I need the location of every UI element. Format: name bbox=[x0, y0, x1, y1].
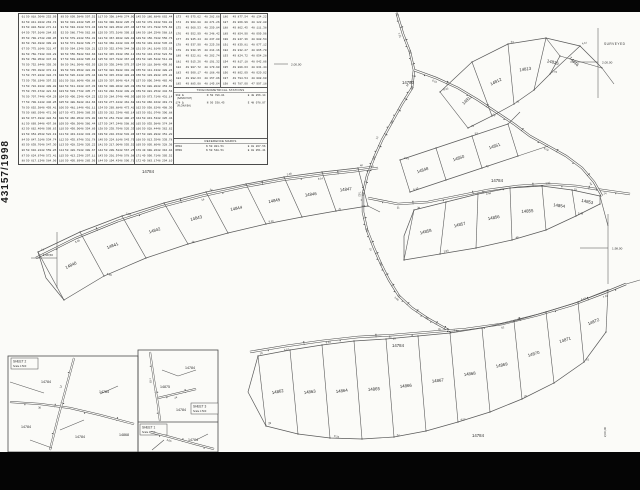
point-number: 8.23 bbox=[443, 86, 449, 91]
point-number: 48 bbox=[360, 163, 364, 168]
parcel-boundary bbox=[400, 124, 508, 160]
road-label: 14784 bbox=[491, 178, 504, 183]
plan-reference-number: 43157/1998 bbox=[0, 140, 11, 203]
survey-point bbox=[577, 301, 578, 302]
survey-point bbox=[545, 311, 546, 312]
inset-parcel-boundary bbox=[30, 440, 52, 448]
point-number: 9.14 bbox=[318, 176, 324, 181]
survey-point bbox=[424, 75, 425, 76]
point-number: 28 bbox=[485, 164, 490, 169]
road-label: 14780 bbox=[402, 80, 415, 85]
lot-number: 14851 bbox=[488, 142, 501, 151]
inset-parcel-boundary bbox=[60, 420, 84, 430]
survey-point bbox=[145, 257, 146, 258]
coordinate-row: 8850 617.1348 584.96 bbox=[19, 158, 57, 163]
lot-number: 14850 bbox=[452, 154, 465, 163]
parcel-divider bbox=[508, 44, 514, 104]
survey-point bbox=[517, 155, 518, 156]
trig-station-northing: N 50 538.45 bbox=[207, 102, 225, 105]
survey-point bbox=[409, 58, 410, 59]
survey-point bbox=[268, 350, 269, 351]
survey-point bbox=[370, 163, 371, 164]
coordinate-row: 17249 983.1748 294.10 bbox=[135, 158, 173, 163]
lot-number: 14864 bbox=[336, 387, 349, 394]
parcel-divider bbox=[472, 62, 492, 116]
parcel-divider bbox=[476, 194, 478, 248]
point-number: 24 bbox=[174, 395, 178, 400]
survey-point bbox=[257, 355, 258, 356]
parcel-divider bbox=[572, 190, 576, 216]
parcel-boundary bbox=[404, 204, 600, 260]
parcel-divider bbox=[322, 345, 330, 438]
reference-mark-northing: N 50 001.51 bbox=[206, 145, 224, 148]
survey-point bbox=[407, 92, 408, 93]
inset-parcel-boundary bbox=[152, 440, 164, 450]
lot-number: 14843 bbox=[190, 214, 203, 222]
inset-sheets-layer: SHEET 2Scale 1:500SHEET 3Scale 1:500SHEE… bbox=[8, 350, 218, 452]
point-number: 16 bbox=[259, 351, 263, 356]
parcel-boundary bbox=[600, 196, 608, 226]
lot-number: 14855 bbox=[521, 208, 534, 214]
survey-point bbox=[227, 232, 228, 233]
inset-lot-number: 14784 bbox=[75, 435, 85, 439]
survey-point bbox=[283, 176, 284, 177]
parcel-divider bbox=[246, 184, 266, 224]
inset-lot-number: 14784 bbox=[99, 390, 109, 394]
survey-point bbox=[421, 316, 422, 317]
parcel-divider bbox=[440, 92, 468, 128]
survey-point bbox=[553, 382, 554, 383]
inset-sheet3-title: SHEET 3 bbox=[193, 405, 206, 409]
lot-number: 14816 bbox=[568, 55, 580, 67]
parcel-divider bbox=[164, 203, 188, 244]
point-number: 16 bbox=[191, 240, 195, 244]
grid-coordinate-label: 1,98,00 bbox=[612, 247, 623, 251]
survey-point bbox=[615, 290, 616, 291]
survey-point bbox=[301, 216, 302, 217]
parcel-divider bbox=[534, 38, 546, 90]
survey-point bbox=[403, 259, 404, 260]
parcel-divider bbox=[322, 172, 336, 211]
point-number: 44 bbox=[396, 433, 400, 438]
inset-lot-number: 14875 bbox=[160, 385, 170, 389]
survey-point bbox=[615, 193, 616, 194]
survey-point bbox=[425, 430, 426, 431]
lot-number: 14813 bbox=[519, 66, 532, 73]
parcel-divider bbox=[386, 339, 394, 437]
survey-point bbox=[599, 195, 600, 196]
point-number: 36 bbox=[38, 405, 42, 409]
survey-point bbox=[489, 411, 490, 412]
survey-point bbox=[409, 191, 410, 192]
lot-number: 14848 bbox=[416, 166, 429, 175]
survey-point bbox=[439, 253, 440, 254]
point-number: 12 bbox=[375, 135, 380, 140]
survey-point bbox=[363, 224, 364, 225]
reference-marks-box: REFERENCE MARKS RM10 N 50 001.51 E 48 26… bbox=[174, 139, 267, 164]
survey-point bbox=[406, 46, 407, 47]
inset-parcel-boundary bbox=[162, 370, 178, 376]
lot-number: 14844 bbox=[230, 205, 243, 212]
point-number: 12 bbox=[58, 384, 63, 388]
survey-point bbox=[484, 328, 485, 329]
point-number: 48 bbox=[515, 235, 519, 239]
point-number: 7.62 bbox=[358, 191, 362, 197]
parcel-divider bbox=[472, 136, 482, 168]
point-number: 12 bbox=[41, 248, 45, 252]
lot-number: 14865 bbox=[368, 386, 381, 392]
survey-point bbox=[361, 438, 362, 439]
survey-point bbox=[607, 289, 608, 290]
survey-point bbox=[382, 202, 383, 203]
parcel-boundary bbox=[508, 112, 520, 124]
coordinate-group: 6150 818.3648 252.096250 811.0248 263.74… bbox=[19, 14, 58, 164]
point-number: 36 bbox=[417, 206, 421, 210]
point-number: 2.44 bbox=[453, 329, 459, 333]
survey-point bbox=[265, 223, 266, 224]
survey-point bbox=[417, 335, 418, 336]
parcel-divider bbox=[290, 350, 298, 434]
survey-point bbox=[157, 413, 158, 414]
parcel-divider bbox=[80, 232, 104, 276]
road-casing bbox=[363, 14, 452, 332]
survey-point bbox=[413, 209, 414, 210]
lot-number: 14846 bbox=[305, 191, 318, 198]
survey-point bbox=[538, 142, 539, 143]
survey-point bbox=[353, 340, 354, 341]
lot-number: 14841 bbox=[106, 241, 120, 250]
survey-point bbox=[605, 331, 606, 332]
coordinate-table-extra-groups: 17349 975.6248 282.6817449 968.0848 271.… bbox=[174, 14, 267, 88]
parcel-boundary bbox=[468, 56, 560, 128]
road-label: 14784 bbox=[472, 433, 485, 438]
point-number: 61 bbox=[501, 325, 505, 330]
point-number: 19 bbox=[523, 394, 528, 399]
lot-number: 14812 bbox=[489, 76, 502, 86]
reference-mark-id: RM10 bbox=[176, 145, 182, 148]
parcel-divider bbox=[440, 202, 446, 254]
survey-point bbox=[382, 270, 383, 271]
inset-lot-number: 14784 bbox=[41, 380, 51, 384]
parcel-divider bbox=[546, 312, 554, 383]
lot-number: 14842 bbox=[148, 226, 161, 234]
lot-number: 14868 bbox=[463, 370, 476, 377]
survey-point bbox=[596, 189, 597, 190]
survey-point bbox=[541, 185, 542, 186]
parcel-divider bbox=[206, 192, 228, 233]
reference-mark-row: RM30 N 50 548.51 E 48 051.41 bbox=[174, 148, 267, 152]
coordinate-row: 14450 194.4348 590.71 bbox=[97, 158, 135, 163]
road-casing bbox=[250, 284, 626, 352]
lot-number: 14870 bbox=[527, 350, 540, 358]
parcel-boundary bbox=[64, 206, 368, 300]
grid-coordinate-label: 2,00,00 bbox=[602, 61, 613, 65]
inset-road-centerline bbox=[10, 402, 134, 424]
inset-sheet1-title: SHEET 1 bbox=[142, 426, 155, 430]
parcel-divider bbox=[38, 252, 64, 300]
reference-mark-easting: E 48 051.41 bbox=[248, 149, 266, 152]
survey-point bbox=[24, 404, 25, 405]
survey-point bbox=[513, 103, 514, 104]
survey-point bbox=[377, 259, 378, 260]
grid-coordinate-label: 2,00,00 bbox=[291, 63, 302, 67]
reference-mark-easting: E 48 267.56 bbox=[248, 145, 266, 148]
survey-point bbox=[549, 73, 550, 74]
road-centerline bbox=[363, 14, 452, 332]
survey-point bbox=[504, 119, 505, 120]
survey-point bbox=[513, 320, 514, 321]
survey-point bbox=[507, 123, 508, 124]
survey-point bbox=[503, 189, 504, 190]
point-number: 24 bbox=[368, 247, 373, 252]
parcel-divider bbox=[284, 177, 302, 217]
lot-number: 14863 bbox=[303, 388, 316, 395]
parcel-divider bbox=[418, 336, 426, 431]
point-number: 61 bbox=[586, 357, 590, 361]
coordinate-row: 11650 405.6948 285.56 bbox=[58, 158, 96, 163]
coordinate-group: 17349 975.6248 282.6817449 968.0848 271.… bbox=[174, 14, 221, 87]
parcel-boundary bbox=[602, 68, 614, 84]
coordinate-group: 18649 877.5448 134.2218749 869.9948 122.… bbox=[221, 14, 267, 87]
survey-point bbox=[265, 425, 266, 426]
survey-point bbox=[222, 193, 223, 194]
survey-point bbox=[575, 215, 576, 216]
survey-point bbox=[545, 37, 546, 38]
survey-point bbox=[84, 413, 85, 414]
survey-point bbox=[245, 183, 246, 184]
survey-point bbox=[335, 210, 336, 211]
lot-number: 14872 bbox=[587, 317, 601, 326]
point-number: 53 bbox=[474, 131, 478, 135]
survey-point bbox=[393, 436, 394, 437]
inset-parcel-boundary bbox=[10, 382, 44, 393]
parcel-boundary bbox=[626, 280, 640, 284]
point-number: 19 bbox=[471, 124, 475, 129]
survey-point bbox=[340, 340, 341, 341]
parcel-boundary bbox=[248, 356, 266, 426]
parcel-divider bbox=[510, 188, 512, 240]
survey-point bbox=[435, 147, 436, 148]
trigonometrical-stations-box: TRIGONOMETRICAL STATIONS 398 Δ N 50 786.… bbox=[174, 88, 267, 139]
inset-sheet2-title: SHEET 2 bbox=[13, 360, 26, 364]
lot-number: 14847 bbox=[340, 186, 353, 192]
survey-point bbox=[321, 171, 322, 172]
survey-point bbox=[509, 187, 510, 188]
grid-coordinate-label: 1,98,50 bbox=[43, 253, 54, 257]
reference-mark-northing: N 50 548.51 bbox=[206, 149, 224, 152]
letterbox-bottom bbox=[0, 452, 640, 490]
lot-number: 14869 bbox=[495, 361, 508, 369]
survey-point bbox=[103, 275, 104, 276]
lot-number: 14845 bbox=[268, 197, 281, 204]
survey-point bbox=[385, 338, 386, 339]
point-number: 7.01 bbox=[552, 70, 558, 74]
point-number: 3.05 bbox=[166, 438, 172, 443]
point-number: 4.57 bbox=[460, 417, 466, 421]
survey-point bbox=[412, 335, 413, 336]
point-number: 24 bbox=[209, 188, 213, 192]
survey-point bbox=[477, 193, 478, 194]
survey-point bbox=[297, 433, 298, 434]
inset-lot-number: 14868 bbox=[119, 433, 129, 437]
parcel-divider bbox=[258, 356, 266, 426]
trig-station-easting: E 48 856.14 bbox=[248, 94, 266, 97]
lot-number: 14854 bbox=[553, 202, 566, 209]
survey-point bbox=[205, 191, 206, 192]
lot-number: 14856 bbox=[487, 214, 500, 221]
parcel-divider bbox=[436, 148, 446, 180]
parcel-divider bbox=[400, 160, 410, 192]
parcel-boundary bbox=[368, 206, 380, 212]
survey-point bbox=[361, 199, 362, 200]
road-label: 14784 bbox=[392, 343, 405, 348]
lot-number: 14866 bbox=[400, 383, 413, 389]
survey-point bbox=[321, 344, 322, 345]
trig-station-northing: N 50 786.01 bbox=[207, 94, 225, 97]
coordinate-table-right-column: 17349 975.6248 282.6817449 968.0848 271.… bbox=[174, 14, 267, 164]
survey-point bbox=[289, 349, 290, 350]
survey-point bbox=[375, 151, 376, 152]
survey-point bbox=[367, 205, 368, 206]
survey-point bbox=[402, 301, 403, 302]
inset-road-centerline bbox=[150, 352, 160, 421]
trig-station-name: (FLOKA BA) bbox=[174, 105, 267, 109]
lot-number: 14840 bbox=[64, 260, 77, 270]
survey-point bbox=[63, 299, 64, 300]
survey-point bbox=[579, 45, 580, 46]
survey-point bbox=[163, 202, 164, 203]
road-label: 14784 bbox=[142, 169, 155, 174]
parcel-divider bbox=[482, 328, 490, 412]
inset-lot-number: 14784 bbox=[176, 408, 186, 412]
survey-point bbox=[445, 201, 446, 202]
survey-point bbox=[545, 229, 546, 230]
parcel-divider bbox=[354, 341, 362, 439]
lot-number: 14858 bbox=[419, 228, 432, 236]
survey-point bbox=[457, 421, 458, 422]
parcel-boundary bbox=[38, 168, 358, 252]
point-number: 4.57 bbox=[284, 347, 290, 352]
survey-point bbox=[387, 127, 388, 128]
survey-point bbox=[301, 179, 302, 180]
point-number: 31 bbox=[397, 205, 401, 209]
survey-point bbox=[166, 397, 167, 398]
trig-station-easting: E 48 078.07 bbox=[248, 102, 266, 105]
survey-point bbox=[471, 61, 472, 62]
point-number: 5.49 bbox=[578, 212, 584, 216]
survey-point bbox=[187, 243, 188, 244]
parcel-divider bbox=[508, 124, 518, 156]
survey-point bbox=[449, 332, 450, 333]
coordinate-group: 11750 398.1448 274.0011850 390.6048 285.… bbox=[97, 14, 136, 164]
parcel-divider bbox=[450, 333, 458, 422]
inset-lot-number: 14784 bbox=[188, 438, 198, 442]
lot-number: 14853 bbox=[581, 198, 594, 206]
survey-point bbox=[475, 247, 476, 248]
coordinate-group: 14550 186.8848 602.4414650 179.3448 591.… bbox=[135, 14, 174, 164]
letterbox-top bbox=[0, 0, 640, 12]
survey-point bbox=[533, 89, 534, 90]
inset-road-casing bbox=[10, 402, 134, 424]
survey-point bbox=[399, 159, 400, 160]
scanned-survey-plan: 127.62243.05485.49169.14312.44536.10288.… bbox=[0, 0, 640, 490]
survey-point bbox=[572, 163, 573, 164]
survey-point bbox=[393, 115, 394, 116]
point-number: 24 bbox=[604, 191, 608, 195]
inset-road-centerline bbox=[150, 432, 214, 449]
survey-point bbox=[481, 167, 482, 168]
survey-point bbox=[367, 171, 368, 172]
survey-point bbox=[507, 43, 508, 44]
survey-point bbox=[511, 239, 512, 240]
survey-point bbox=[394, 291, 395, 292]
road-centerline bbox=[250, 284, 626, 352]
lot-number: 14857 bbox=[453, 221, 466, 229]
inset-lot-number: 14784 bbox=[21, 425, 31, 429]
survey-point bbox=[443, 200, 444, 201]
survey-point bbox=[559, 55, 560, 56]
parcel-boundary bbox=[266, 332, 606, 439]
point-number: 7.62 bbox=[148, 378, 153, 384]
parcel-divider bbox=[578, 302, 584, 362]
point-number: 4.57 bbox=[582, 41, 588, 46]
parcel-boundary bbox=[410, 156, 518, 192]
survey-point bbox=[159, 436, 160, 437]
survey-point bbox=[362, 187, 363, 188]
parcel-divider bbox=[542, 186, 546, 230]
coordinate-group: 8950 609.5848 597.529050 601.8448 585.97… bbox=[58, 14, 97, 164]
parcel-divider bbox=[404, 210, 414, 260]
road-casing bbox=[36, 168, 378, 258]
survey-point bbox=[445, 179, 446, 180]
point-number: 2.44 bbox=[403, 156, 409, 161]
lot-number: 14871 bbox=[559, 335, 572, 344]
coordinate-row: 18549 885.0848 145.64 bbox=[174, 81, 220, 87]
survey-point bbox=[571, 189, 572, 190]
parcel-divider bbox=[122, 216, 146, 258]
survey-point bbox=[79, 231, 80, 232]
surveyed-label: SURVEYED bbox=[604, 42, 626, 46]
inset-lot-number: 14784 bbox=[185, 366, 195, 370]
grid-coordinate-label: 2,00,00 bbox=[603, 427, 607, 438]
survey-point bbox=[367, 236, 368, 237]
survey-point bbox=[121, 215, 122, 216]
coordinate-table-left-groups: 6150 818.3648 252.096250 811.0248 263.74… bbox=[19, 14, 174, 164]
survey-point bbox=[601, 67, 602, 68]
point-number: 19 bbox=[393, 336, 397, 340]
inset-parcel-boundary bbox=[178, 370, 196, 376]
survey-point bbox=[37, 251, 38, 252]
survey-point bbox=[439, 91, 440, 92]
inset-sheet2-scale: Scale 1:500 bbox=[13, 365, 27, 368]
survey-point bbox=[521, 398, 522, 399]
inset-sheet3-scale: Scale 1:500 bbox=[193, 410, 207, 413]
survey-point bbox=[150, 366, 151, 367]
parcel-divider bbox=[514, 321, 522, 399]
survey-point bbox=[599, 203, 600, 204]
parcel-boundary bbox=[258, 290, 608, 356]
survey-point bbox=[555, 311, 556, 312]
point-number: 16 bbox=[201, 197, 205, 202]
survey-point bbox=[430, 322, 431, 323]
point-number: 6.10 bbox=[413, 186, 420, 192]
road-centerline bbox=[36, 168, 378, 258]
inset-sheet3-border bbox=[138, 350, 218, 452]
survey-point bbox=[357, 167, 358, 168]
lot-number: 14867 bbox=[432, 377, 445, 383]
survey-point bbox=[481, 327, 482, 328]
point-number: 28 bbox=[268, 421, 272, 426]
